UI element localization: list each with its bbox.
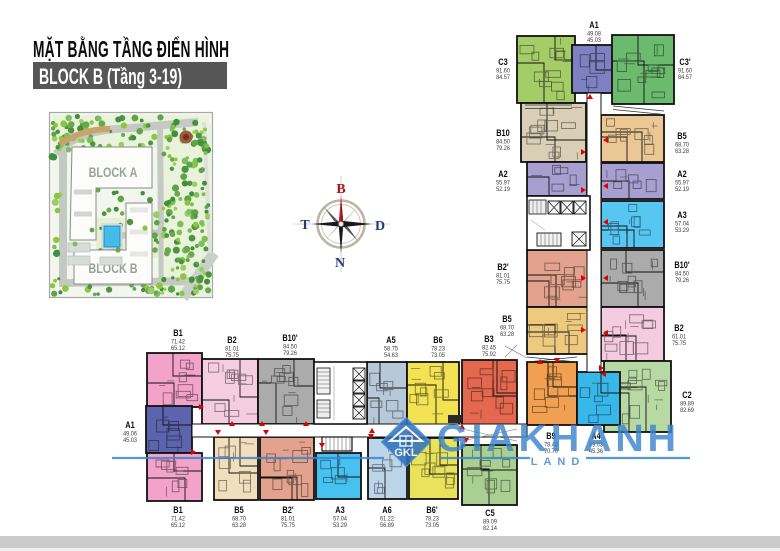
svg-text:MẶT BẰNG TẦNG ĐIỂN HÌNH: MẶT BẰNG TẦNG ĐIỂN HÌNH — [33, 36, 229, 63]
svg-text:63.28: 63.28 — [232, 523, 247, 529]
svg-text:61.01: 61.01 — [672, 334, 686, 340]
svg-text:78.23: 78.23 — [431, 346, 446, 352]
svg-text:B: B — [336, 182, 345, 197]
svg-text:68.70: 68.70 — [675, 142, 690, 148]
svg-text:63.28: 63.28 — [675, 149, 690, 155]
svg-text:A2: A2 — [498, 169, 508, 179]
svg-text:A1: A1 — [589, 20, 599, 30]
svg-text:A5: A5 — [386, 335, 396, 345]
svg-text:GKL: GKL — [394, 447, 418, 459]
svg-text:N: N — [335, 256, 345, 271]
svg-text:45.03: 45.03 — [123, 438, 138, 444]
svg-text:LAND: LAND — [531, 456, 586, 468]
svg-text:73.05: 73.05 — [425, 523, 440, 529]
svg-text:52.19: 52.19 — [675, 187, 690, 193]
svg-text:B5: B5 — [234, 505, 244, 515]
svg-text:B10: B10 — [496, 128, 510, 138]
svg-text:71.42: 71.42 — [171, 339, 185, 345]
svg-text:79.26: 79.26 — [675, 278, 690, 284]
svg-text:B2': B2' — [282, 505, 293, 515]
svg-text:81.01: 81.01 — [281, 516, 295, 522]
svg-text:57.04: 57.04 — [333, 516, 348, 522]
svg-text:C2: C2 — [682, 390, 692, 400]
svg-text:A1: A1 — [125, 420, 135, 430]
svg-text:73.05: 73.05 — [431, 353, 446, 359]
svg-text:75.75: 75.75 — [672, 341, 687, 347]
svg-text:75.75: 75.75 — [281, 523, 296, 529]
svg-text:79.26: 79.26 — [496, 146, 511, 152]
svg-text:82.45: 82.45 — [482, 345, 497, 351]
svg-text:79.26: 79.26 — [283, 351, 298, 357]
svg-text:68.70: 68.70 — [232, 516, 247, 522]
svg-text:49.06: 49.06 — [123, 431, 138, 437]
svg-text:C5: C5 — [485, 508, 495, 518]
svg-text:49.08: 49.08 — [587, 31, 602, 37]
svg-text:B5: B5 — [502, 314, 512, 324]
svg-text:A6: A6 — [382, 505, 392, 515]
svg-text:75.92: 75.92 — [482, 352, 496, 358]
svg-text:B6': B6' — [426, 505, 437, 515]
svg-text:84.57: 84.57 — [496, 75, 510, 81]
svg-text:84.50: 84.50 — [496, 139, 511, 145]
svg-text:B2: B2 — [674, 323, 684, 333]
svg-text:C3: C3 — [498, 57, 508, 67]
svg-text:B2: B2 — [227, 335, 237, 345]
svg-text:57.04: 57.04 — [675, 221, 690, 227]
svg-text:BLOCK A: BLOCK A — [89, 165, 138, 180]
svg-text:53.29: 53.29 — [675, 228, 690, 234]
svg-text:89.09: 89.09 — [483, 519, 498, 525]
svg-text:84.50: 84.50 — [283, 344, 298, 350]
svg-text:A3: A3 — [677, 210, 687, 220]
svg-text:78.23: 78.23 — [425, 516, 440, 522]
svg-text:71.42: 71.42 — [171, 516, 185, 522]
svg-text:52.19: 52.19 — [496, 187, 511, 193]
svg-text:T: T — [300, 218, 310, 233]
svg-text:B1: B1 — [173, 505, 183, 515]
svg-text:B10': B10' — [674, 260, 689, 270]
svg-text:B2': B2' — [497, 262, 508, 272]
svg-text:55.97: 55.97 — [496, 180, 510, 186]
svg-text:53.29: 53.29 — [333, 523, 348, 529]
svg-text:68.70: 68.70 — [500, 325, 515, 331]
svg-text:82.14: 82.14 — [483, 526, 498, 532]
svg-text:63.28: 63.28 — [500, 332, 515, 338]
svg-text:45.03: 45.03 — [587, 38, 602, 44]
svg-text:B3: B3 — [484, 334, 494, 344]
svg-text:81.01: 81.01 — [225, 346, 239, 352]
svg-text:65.12: 65.12 — [171, 523, 185, 529]
svg-text:75.75: 75.75 — [225, 353, 240, 359]
svg-text:B6: B6 — [433, 335, 443, 345]
svg-text:82.69: 82.69 — [680, 408, 695, 414]
svg-text:BLOCK B (Tầng 3-19): BLOCK B (Tầng 3-19) — [39, 64, 182, 89]
svg-text:89.89: 89.89 — [680, 401, 695, 407]
svg-text:55.97: 55.97 — [675, 180, 689, 186]
svg-text:D: D — [375, 219, 385, 234]
svg-text:58.75: 58.75 — [384, 346, 399, 352]
svg-text:A3: A3 — [335, 505, 345, 515]
svg-text:91.60: 91.60 — [496, 68, 511, 74]
svg-text:81.01: 81.01 — [496, 273, 510, 279]
svg-text:C3': C3' — [679, 57, 690, 67]
svg-text:65.12: 65.12 — [171, 346, 185, 352]
svg-text:GIAKHANH: GIAKHANH — [437, 418, 680, 460]
svg-text:A2: A2 — [677, 169, 687, 179]
svg-text:B1: B1 — [173, 328, 183, 338]
svg-text:75.75: 75.75 — [496, 280, 511, 286]
svg-text:84.50: 84.50 — [675, 271, 690, 277]
svg-text:B10': B10' — [282, 333, 297, 343]
svg-text:B5: B5 — [677, 131, 687, 141]
svg-text:61.22: 61.22 — [380, 516, 394, 522]
svg-text:84.57: 84.57 — [678, 75, 692, 81]
svg-text:54.63: 54.63 — [384, 353, 399, 359]
svg-text:91.60: 91.60 — [678, 68, 693, 74]
svg-text:56.89: 56.89 — [380, 523, 395, 529]
